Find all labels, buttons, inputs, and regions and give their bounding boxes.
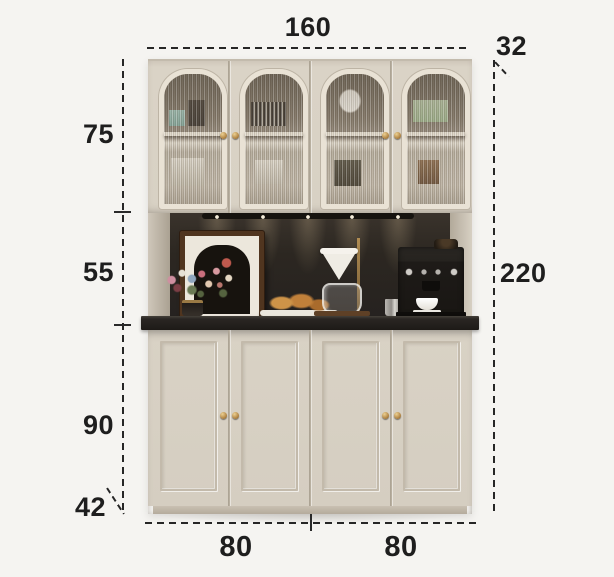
- vase: [182, 300, 203, 316]
- lower-door: [391, 330, 472, 506]
- dimension-tick: [310, 514, 312, 531]
- dimension-tick: [114, 211, 131, 213]
- door-seam: [309, 330, 311, 506]
- glass-door-window: [402, 69, 470, 209]
- door-molding: [160, 341, 217, 491]
- downlights-icon: [202, 213, 414, 219]
- dimension-diagram: 160 32 75 55 220 90 42 80 80: [0, 0, 614, 577]
- lower-door: [148, 330, 229, 506]
- dimension-label-middle-height: 55: [66, 259, 114, 286]
- fluted-glass-overlay: [245, 74, 303, 204]
- upper-glass-cabinet: [148, 59, 472, 215]
- door-knob: [220, 412, 227, 419]
- door-molding: [241, 341, 298, 491]
- door-knob: [382, 412, 389, 419]
- door-seam: [390, 330, 392, 506]
- door-seam: [228, 61, 230, 215]
- dimension-tick: [114, 324, 131, 326]
- lower-door: [229, 330, 310, 506]
- glass-door-window: [159, 69, 227, 209]
- cabinet: [148, 59, 472, 514]
- door-seam: [309, 61, 311, 215]
- glass-door-window: [240, 69, 308, 209]
- countertop: [141, 316, 479, 330]
- dimension-label-lower-depth: 42: [56, 494, 106, 521]
- dimension-label-top-width: 160: [268, 14, 348, 41]
- flower-bouquet: [160, 262, 218, 302]
- door-knob: [394, 132, 401, 139]
- dimension-line-bottom-width: [145, 522, 480, 524]
- door-knob: [220, 132, 227, 139]
- door-seam: [390, 61, 392, 215]
- dimension-line-total-height: [493, 60, 495, 515]
- door-knob: [394, 412, 401, 419]
- dimension-leader-upper-depth: [494, 61, 509, 77]
- lower-cabinet: [148, 330, 472, 506]
- dimension-label-upper-height: 75: [66, 121, 114, 148]
- machine-dials: [398, 263, 464, 281]
- machine-group-head: [422, 281, 440, 291]
- fluted-glass-overlay: [164, 74, 222, 204]
- plinth: [153, 506, 467, 514]
- dimension-label-bottom-width-right: 80: [363, 533, 439, 562]
- door-molding: [403, 341, 460, 491]
- fluted-glass-overlay: [407, 74, 465, 204]
- dimension-line-left-height: [122, 59, 124, 514]
- lower-door: [310, 330, 391, 506]
- door-molding: [322, 341, 379, 491]
- door-seam: [228, 330, 230, 506]
- dimension-label-lower-height: 90: [66, 412, 114, 439]
- pour-over-dripper: [323, 254, 355, 280]
- dimension-line-top-width: [147, 47, 466, 49]
- bean-hopper: [434, 239, 458, 249]
- glass-door-window: [321, 69, 389, 209]
- door-knob: [382, 132, 389, 139]
- dimension-label-bottom-width-left: 80: [198, 533, 274, 562]
- dimension-label-total-height: 220: [500, 260, 547, 287]
- fluted-glass-overlay: [326, 74, 384, 204]
- door-knob: [232, 132, 239, 139]
- door-knob: [232, 412, 239, 419]
- dimension-label-upper-depth: 32: [496, 33, 527, 60]
